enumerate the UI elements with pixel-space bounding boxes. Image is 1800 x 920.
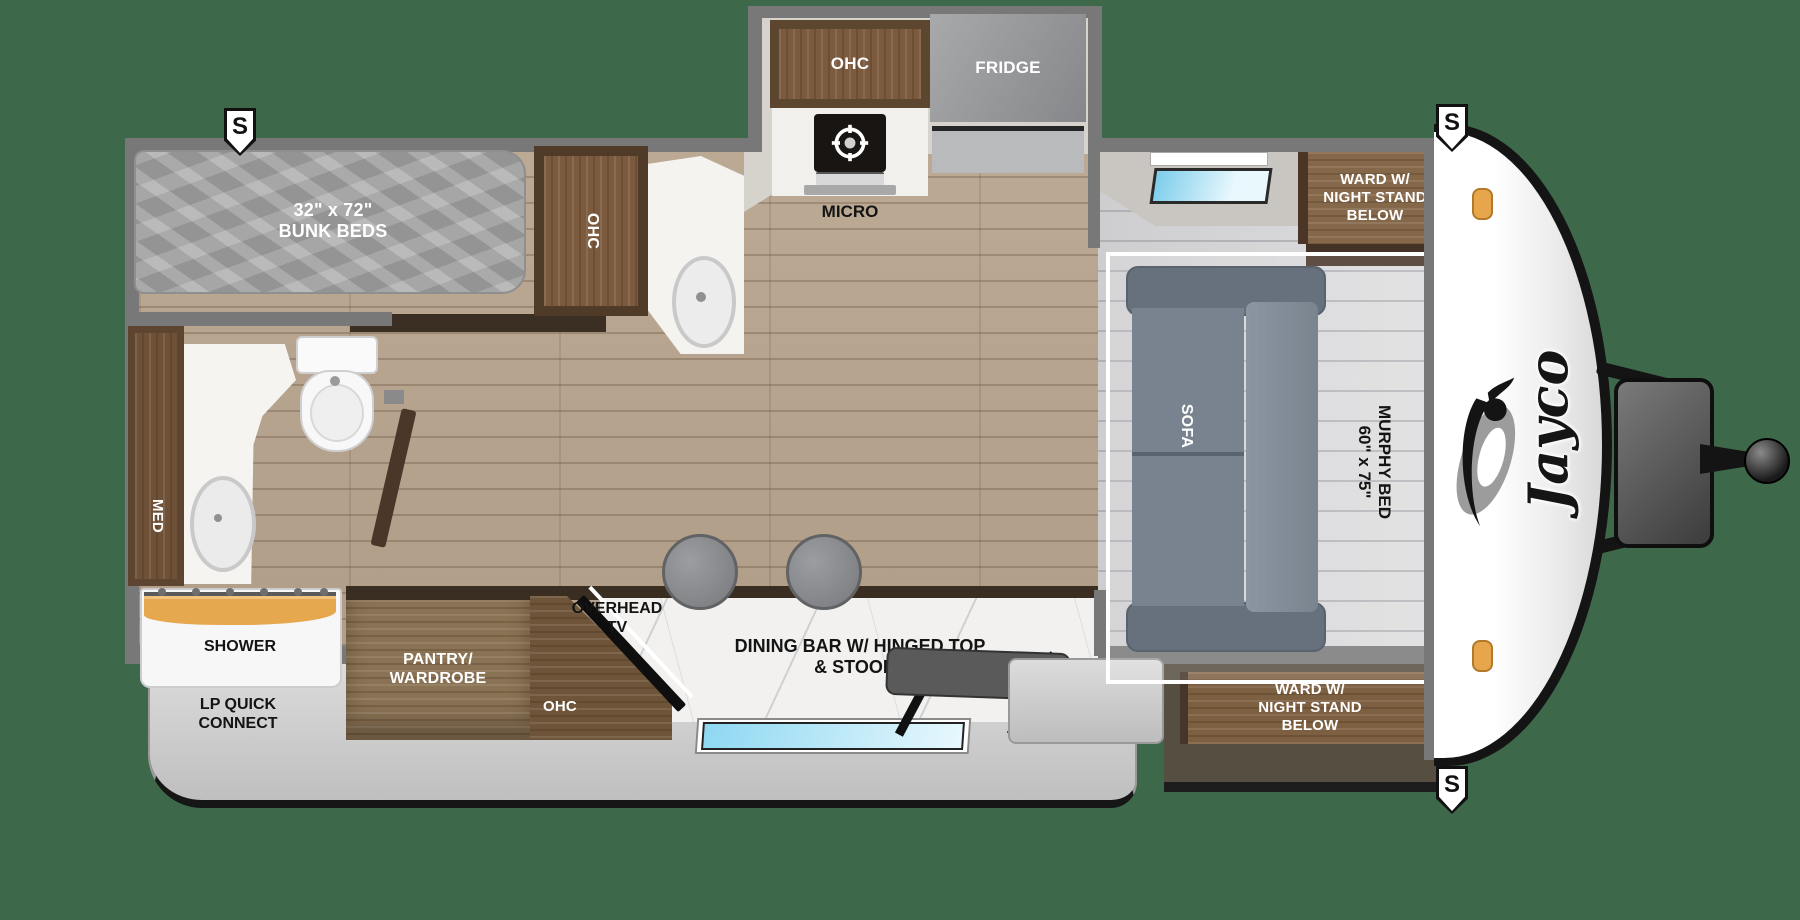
stove-handle (816, 172, 884, 185)
burner-icon (830, 123, 870, 163)
counter-window-sill (1150, 152, 1268, 166)
corner-ohc-label: OHC (520, 698, 600, 716)
divider-dining-entry (1094, 590, 1106, 656)
bunk-beds-label: 32" x 72" BUNK BEDS (233, 200, 433, 242)
lp-line1: LP QUICK (158, 696, 318, 715)
lp-line2: CONNECT (158, 715, 318, 734)
counter-window (1149, 168, 1272, 204)
pantry-l1: PANTRY/ (403, 651, 473, 670)
toilet-bowl-inner (310, 384, 364, 442)
stool-1 (662, 534, 738, 610)
speaker-badge-front-bottom-letter: S (1439, 769, 1465, 811)
speaker-badge-front-bottom: S (1436, 766, 1468, 814)
door-stub (384, 390, 404, 404)
med-label: MED (146, 486, 166, 546)
speaker-badge-rear-letter: S (227, 111, 253, 153)
pantry-wardrobe: PANTRY/ WARDROBE (346, 600, 530, 740)
bunk-size: 32" x 72" (233, 200, 433, 221)
bunk-name: BUNK BEDS (233, 221, 433, 242)
cooktop (814, 114, 886, 172)
clearance-light-bottom (1472, 640, 1493, 672)
stove-vent (804, 185, 896, 195)
curtain-ring-icons (152, 588, 332, 598)
toilet-tank (296, 336, 378, 374)
pantry-l2: WARDROBE (390, 670, 487, 689)
rv-floorplan: LP QUICK CONNECT 15' AWNING 32" x 72" BU… (0, 0, 1800, 920)
ward-bottom-l1: WARD W/ (1275, 681, 1345, 699)
bathroom-wall (134, 312, 392, 326)
vanity-sink-drain (214, 514, 222, 522)
shower-label: SHOWER (150, 638, 330, 657)
speaker-badge-front-top-letter: S (1439, 107, 1465, 149)
lp-quick-connect-label: LP QUICK CONNECT (158, 696, 318, 734)
overhead-tv-label: OVERHEAD TV (552, 600, 682, 638)
ward-bottom-l2: NIGHT STAND (1258, 699, 1362, 717)
vanity-sink (190, 476, 256, 572)
tv-l2: TV (552, 619, 682, 638)
sofa-back (1246, 302, 1318, 612)
propane-cover (1614, 378, 1714, 548)
micro-label: MICRO (800, 202, 900, 222)
fridge-door (932, 126, 1084, 173)
tv-l1: OVERHEAD (552, 600, 682, 619)
hitch-ball (1744, 438, 1790, 484)
jayco-logo: Jayco (1516, 320, 1580, 540)
shower-curtain (144, 596, 336, 625)
ohc-upper-label: OHC (831, 54, 869, 74)
toilet-flush-button (330, 376, 340, 386)
fridge-label: FRIDGE (975, 58, 1040, 78)
murphy-size: 60" x 75" (1354, 352, 1374, 572)
ward-top: WARD W/ NIGHT STAND BELOW (1298, 152, 1442, 244)
ward-top-l1: WARD W/ (1340, 171, 1410, 189)
ohc-upper-panel: OHC (779, 29, 921, 99)
ward-top-l2: NIGHT STAND (1323, 189, 1427, 207)
ward-bottom-l3: BELOW (1282, 717, 1339, 735)
sofa-label: SOFA (1164, 386, 1208, 466)
jayco-bird-icon (1446, 370, 1520, 550)
murphy-bed-label: MURPHY BED 60" x 75" (1338, 352, 1394, 572)
dining-window (701, 722, 965, 750)
clearance-light-top (1472, 188, 1493, 220)
divider-kitchen-bedroom (1088, 152, 1100, 248)
kitchen-sink-drain (696, 292, 706, 302)
ohc-tall-label: OHC (581, 201, 601, 261)
stool-2 (786, 534, 862, 610)
ward-top-l3: BELOW (1347, 207, 1404, 225)
murphy-name: MURPHY BED (1374, 352, 1394, 572)
kitchen-sink (672, 256, 736, 348)
fridge: FRIDGE (930, 14, 1086, 122)
